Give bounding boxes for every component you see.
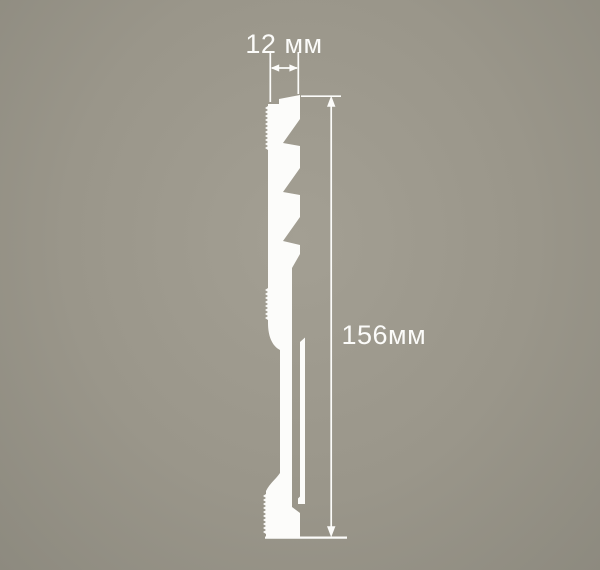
profile-silhouette [263,95,300,537]
arrow-down-icon [327,526,335,537]
profile-drawing: 12 мм 156мм [0,0,600,570]
diagram-canvas: 12 мм 156мм [0,0,600,570]
arrow-up-icon [327,96,335,107]
arrow-right-icon [289,64,298,71]
width-dimension-label: 12 мм [245,29,322,59]
height-dimension-label: 156мм [342,320,427,350]
width-dimension: 12 мм [245,29,322,102]
cable-channel-front-wall-shape [298,338,305,505]
arrow-left-icon [271,64,280,71]
